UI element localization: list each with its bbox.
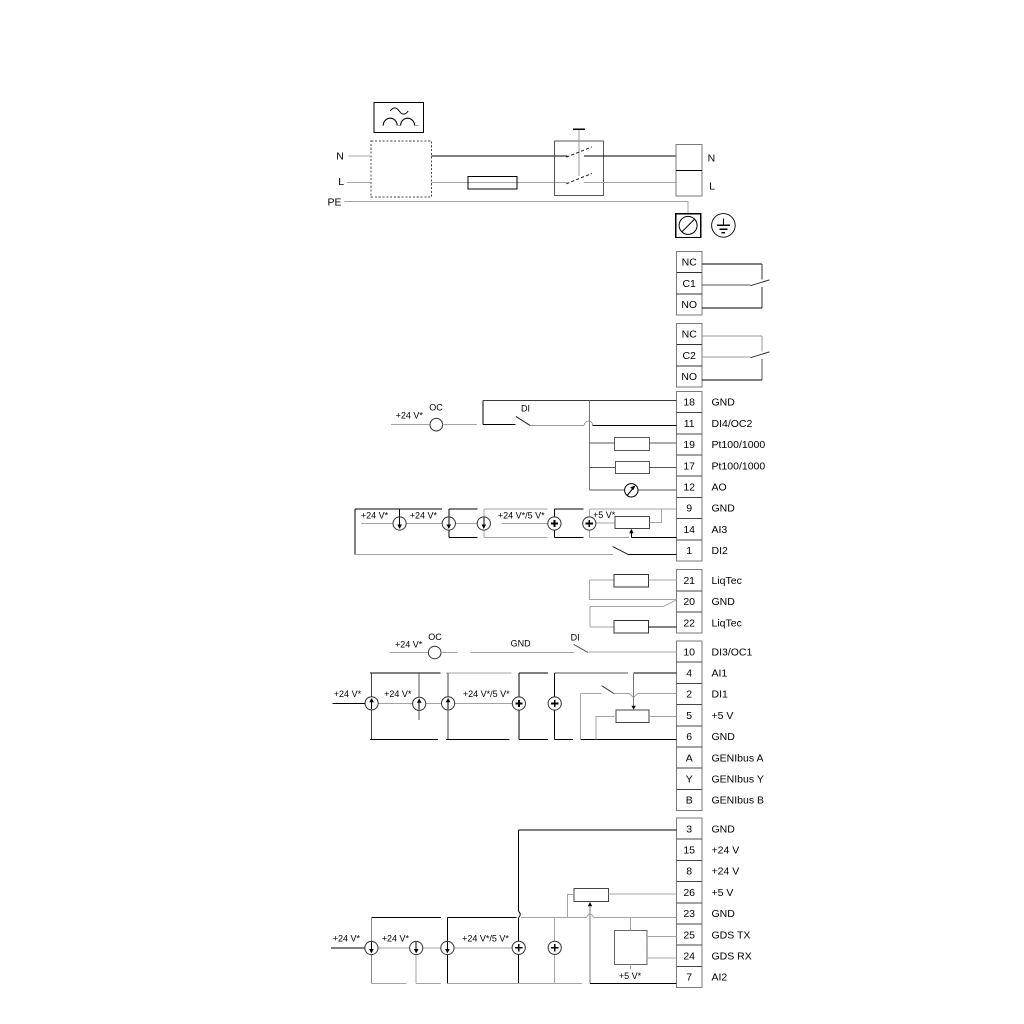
- svg-text:DI2: DI2: [712, 545, 729, 557]
- svg-text:NC: NC: [682, 257, 698, 269]
- svg-text:GND: GND: [511, 638, 531, 648]
- svg-text:1: 1: [686, 545, 692, 557]
- svg-text:+24 V*: +24 V*: [410, 510, 438, 520]
- svg-text:NC: NC: [682, 329, 698, 341]
- svg-text:5: 5: [686, 710, 692, 722]
- svg-text:NO: NO: [681, 371, 697, 383]
- svg-text:+24 V*: +24 V*: [382, 934, 410, 944]
- svg-text:+24 V*/5 V*: +24 V*/5 V*: [463, 689, 510, 699]
- svg-text:+24 V*: +24 V*: [395, 640, 423, 650]
- svg-text:DI: DI: [521, 404, 530, 414]
- svg-text:DI: DI: [571, 633, 580, 643]
- svg-text:11: 11: [684, 418, 695, 430]
- svg-text:+5 V*: +5 V*: [593, 510, 616, 520]
- svg-text:Pt100/1000: Pt100/1000: [712, 460, 766, 472]
- svg-text:21: 21: [683, 575, 695, 587]
- svg-text:GENIbus B: GENIbus B: [712, 795, 765, 807]
- svg-text:GDS TX: GDS TX: [712, 929, 751, 941]
- svg-text:LiqTec: LiqTec: [712, 575, 742, 587]
- svg-text:DI4/OC2: DI4/OC2: [712, 418, 753, 430]
- svg-text:GDS RX: GDS RX: [712, 951, 752, 963]
- svg-text:AO: AO: [712, 482, 727, 494]
- svg-text:Pt100/1000: Pt100/1000: [712, 439, 766, 451]
- svg-text:GND: GND: [712, 596, 736, 608]
- svg-text:+24 V*: +24 V*: [333, 934, 361, 944]
- svg-text:20: 20: [683, 596, 695, 608]
- svg-text:7: 7: [686, 972, 692, 984]
- svg-text:GND: GND: [712, 823, 736, 835]
- svg-text:25: 25: [683, 929, 695, 941]
- svg-text:OC: OC: [429, 403, 443, 413]
- svg-text:PE: PE: [328, 197, 342, 209]
- svg-text:GND: GND: [712, 908, 736, 920]
- svg-text:GENIbus Y: GENIbus Y: [712, 774, 764, 786]
- svg-text:Y: Y: [686, 774, 693, 786]
- svg-text:+24 V*/5 V*: +24 V*/5 V*: [462, 934, 509, 944]
- svg-text:C1: C1: [682, 278, 696, 290]
- svg-text:+5 V: +5 V: [712, 710, 734, 722]
- svg-text:C2: C2: [682, 350, 696, 362]
- svg-text:GND: GND: [712, 397, 736, 409]
- svg-text:10: 10: [683, 646, 695, 658]
- svg-text:19: 19: [683, 439, 695, 451]
- svg-text:L: L: [709, 180, 715, 192]
- svg-text:LiqTec: LiqTec: [712, 617, 742, 629]
- svg-text:23: 23: [683, 908, 695, 920]
- svg-text:+24 V*: +24 V*: [334, 689, 362, 699]
- svg-text:OC: OC: [428, 632, 442, 642]
- svg-text:8: 8: [686, 866, 692, 878]
- svg-text:GND: GND: [712, 731, 736, 743]
- svg-text:+24 V: +24 V: [712, 845, 740, 857]
- svg-text:B: B: [686, 795, 693, 807]
- svg-text:4: 4: [686, 668, 692, 680]
- svg-text:22: 22: [683, 617, 695, 629]
- svg-text:14: 14: [683, 524, 695, 536]
- svg-text:3: 3: [686, 823, 692, 835]
- svg-text:9: 9: [686, 503, 692, 515]
- svg-text:18: 18: [683, 397, 695, 409]
- svg-text:+24 V*: +24 V*: [384, 689, 412, 699]
- svg-text:+5 V*: +5 V*: [619, 971, 642, 981]
- svg-text:17: 17: [683, 460, 695, 472]
- svg-text:AI3: AI3: [712, 524, 728, 536]
- svg-text:12: 12: [683, 482, 695, 494]
- svg-text:AI1: AI1: [712, 668, 728, 680]
- svg-text:15: 15: [683, 845, 695, 857]
- svg-text:2: 2: [686, 689, 692, 701]
- svg-text:+5 V: +5 V: [712, 887, 734, 899]
- svg-text:+24 V*/5 V*: +24 V*/5 V*: [498, 510, 545, 520]
- svg-text:DI1: DI1: [712, 689, 729, 701]
- svg-text:GND: GND: [712, 503, 736, 515]
- svg-text:GENIbus A: GENIbus A: [712, 752, 764, 764]
- svg-text:6: 6: [686, 731, 692, 743]
- svg-text:24: 24: [683, 951, 695, 963]
- svg-text:N: N: [336, 150, 344, 162]
- svg-text:N: N: [708, 152, 716, 164]
- svg-text:26: 26: [683, 887, 695, 899]
- svg-text:NO: NO: [681, 299, 697, 311]
- svg-text:+24 V*: +24 V*: [396, 410, 424, 420]
- svg-text:+24 V*: +24 V*: [361, 510, 389, 520]
- svg-text:+24 V: +24 V: [712, 866, 740, 878]
- svg-text:A: A: [686, 752, 693, 764]
- svg-text:AI2: AI2: [712, 972, 728, 984]
- svg-text:DI3/OC1: DI3/OC1: [712, 646, 753, 658]
- svg-text:L: L: [338, 176, 344, 188]
